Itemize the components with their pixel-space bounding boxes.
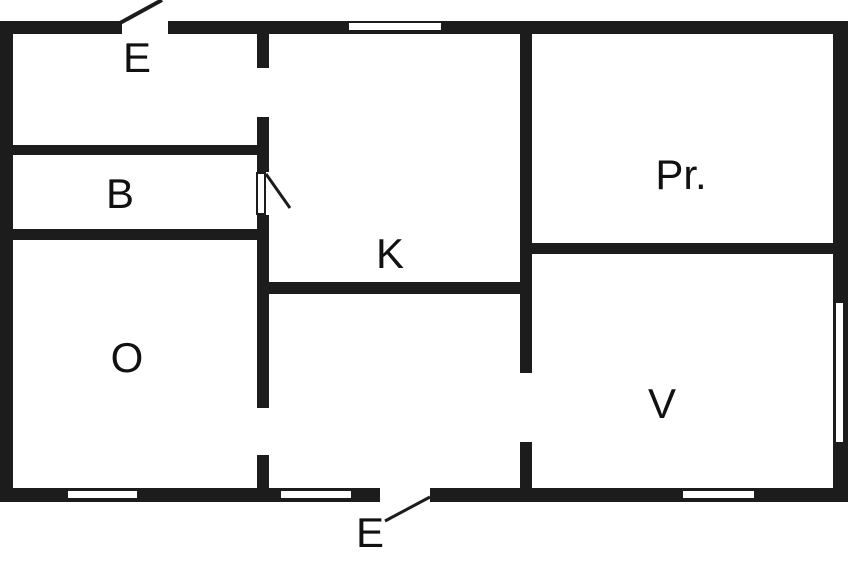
room-label-room-pr: Pr. — [655, 154, 706, 196]
window-bottom-2 — [280, 490, 352, 499]
left-wall — [0, 21, 13, 502]
window-bottom-3 — [682, 490, 755, 499]
bottom-wall-right — [430, 488, 848, 502]
room-label-entry-top: E — [123, 37, 151, 79]
top-wall-right — [168, 21, 848, 34]
inner-v1-seg1 — [257, 33, 269, 68]
room-label-entry-bottom: E — [356, 512, 384, 554]
wall-e-b — [13, 145, 269, 155]
door-swing-top — [120, 0, 162, 23]
inner-v1-seg3 — [257, 215, 269, 408]
door-leaf-b — [256, 172, 266, 215]
door-swing-b — [266, 174, 290, 208]
window-top — [348, 22, 442, 31]
room-label-room-o: O — [111, 337, 144, 379]
floorplan-canvas: EBOKPr.VE — [0, 0, 848, 565]
window-bottom-1 — [67, 490, 138, 499]
inner-v2-seg2 — [520, 442, 532, 488]
room-label-kitchen: K — [376, 233, 404, 275]
room-label-bathroom: B — [106, 173, 134, 215]
inner-v1-seg4 — [257, 455, 269, 488]
wall-pr-v — [520, 243, 833, 254]
top-wall-left — [0, 21, 122, 34]
wall-k-bottom — [257, 282, 532, 294]
window-right — [836, 303, 843, 442]
inner-v2-seg1 — [520, 33, 532, 373]
room-label-room-v: V — [648, 383, 676, 425]
wall-b-o — [13, 229, 269, 240]
leader-entry-bottom — [385, 497, 430, 521]
